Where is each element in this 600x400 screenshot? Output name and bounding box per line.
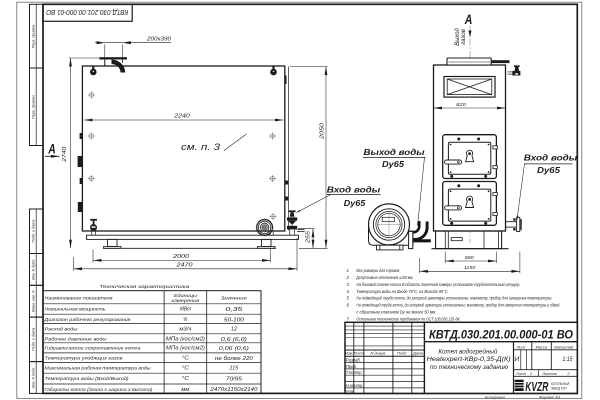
svg-text:не более 220: не более 220 bbox=[215, 356, 254, 362]
svg-text:Перв. примен.: Перв. примен. bbox=[31, 24, 35, 49]
svg-text:Наименование показателя: Наименование показателя bbox=[45, 295, 114, 300]
svg-text:Допустимые отклонения ±100 мм.: Допустимые отклонения ±100 мм. bbox=[356, 275, 414, 280]
svg-text:°С: °С bbox=[182, 365, 189, 371]
svg-text:Рабочее давление воды: Рабочее давление воды bbox=[45, 337, 108, 342]
svg-text:Котел водогрейный: Котел водогрейный bbox=[438, 347, 497, 355]
svg-text:Утв.: Утв. bbox=[346, 389, 356, 394]
svg-text:Перв. примен.: Перв. примен. bbox=[31, 94, 35, 119]
svg-text:%: % bbox=[183, 317, 187, 323]
svg-text:Гидравлическое сопротивление к: Гидравлическое сопротивление котла bbox=[45, 346, 142, 351]
svg-text:Масса: Масса bbox=[535, 345, 547, 350]
svg-text:КОТЕЛЬНЫЙ: КОТЕЛЬНЫЙ bbox=[551, 382, 569, 386]
svg-text:°С: °С bbox=[182, 376, 189, 382]
svg-text:А: А bbox=[48, 141, 56, 157]
svg-text:И: И bbox=[515, 356, 520, 363]
svg-text:Подп. и дата: Подп. и дата bbox=[31, 220, 35, 243]
svg-text:12: 12 bbox=[231, 327, 238, 333]
svg-text:Максимальная рабочая температу: Максимальная рабочая температура воды bbox=[45, 365, 152, 370]
svg-text:Разраб.: Разраб. bbox=[346, 358, 361, 363]
svg-text:газов: газов bbox=[460, 29, 467, 45]
svg-text:Инв. N дубл.: Инв. N дубл. bbox=[31, 259, 35, 280]
svg-text:измерения: измерения bbox=[171, 298, 200, 303]
svg-text:МПа (кгс/см2): МПа (кгс/см2) bbox=[166, 346, 205, 352]
svg-text:115: 115 bbox=[229, 366, 239, 372]
svg-text:1150: 1150 bbox=[464, 265, 476, 271]
svg-text:КВТД.030.201.00.000-01 ВО: КВТД.030.201.00.000-01 ВО bbox=[46, 8, 128, 17]
svg-text:Масштаб: Масштаб bbox=[554, 345, 574, 350]
svg-text:Т.контр.: Т.контр. bbox=[346, 370, 363, 375]
svg-text:Номинальная мощность: Номинальная мощность bbox=[45, 307, 107, 312]
svg-text:2: 2 bbox=[346, 275, 350, 280]
svg-text:Взам. инв. N: Взам. инв. N bbox=[31, 290, 35, 312]
svg-text:с обратным клапаном Dу не мен: с обратным клапаном Dу не менее 50 мм. bbox=[356, 310, 436, 315]
svg-text:Подп. и дата: Подп. и дата bbox=[31, 328, 35, 351]
svg-text:На отводящей трубе котла, до з: На отводящей трубе котла, до запорной ар… bbox=[356, 303, 559, 308]
svg-text:580: 580 bbox=[465, 255, 474, 261]
svg-text:2000: 2000 bbox=[172, 254, 189, 260]
svg-text:Формат А3: Формат А3 bbox=[539, 395, 561, 400]
svg-text:Значение: Значение bbox=[221, 296, 247, 301]
svg-text:МВт: МВт bbox=[180, 307, 191, 313]
svg-text:Вход воды: Вход воды bbox=[327, 184, 381, 194]
svg-text:А: А bbox=[464, 11, 472, 27]
svg-text:мм: мм bbox=[181, 387, 190, 393]
svg-text:Температура уходящих газов: Температура уходящих газов bbox=[45, 356, 124, 361]
svg-text:Листов: Листов bbox=[541, 371, 556, 376]
svg-text:Остальные технические требован: Остальные технические требования по ОСТ … bbox=[356, 317, 460, 322]
svg-text:2050: 2050 bbox=[320, 123, 326, 140]
svg-text:KVZR: KVZR bbox=[525, 380, 548, 394]
svg-text:Лист: Лист bbox=[353, 351, 365, 356]
svg-text:0,6 (6,0): 0,6 (6,0) bbox=[221, 337, 247, 343]
svg-text:Н.контр.: Н.контр. bbox=[346, 383, 364, 388]
svg-text:255: 255 bbox=[306, 231, 312, 245]
svg-text:Копировал: Копировал bbox=[485, 396, 505, 400]
svg-text:50-100: 50-100 bbox=[224, 317, 245, 323]
svg-text:Температура воды (Вход/Выход): Температура воды (Вход/Выход) bbox=[45, 376, 130, 381]
svg-text:2470: 2470 bbox=[175, 262, 192, 268]
svg-text:Диапазон рабочего регулировани: Диапазон рабочего регулирования bbox=[43, 317, 131, 322]
svg-text:Heatexpert-КВр-0,35-Д(К): Heatexpert-КВр-0,35-Д(К) bbox=[427, 356, 511, 363]
svg-text:Вход воды: Вход воды bbox=[524, 153, 578, 163]
svg-text:Дата: Дата bbox=[412, 351, 424, 356]
svg-text:200х390: 200х390 bbox=[146, 36, 171, 42]
svg-text:1:15: 1:15 bbox=[563, 356, 573, 363]
svg-text:0,06 (0,6): 0,06 (0,6) bbox=[219, 346, 249, 352]
svg-text:Габариты котла (длина х ширина: Габариты котла (длина х ширина х высота) bbox=[45, 387, 154, 392]
svg-text:Изм.: Изм. bbox=[345, 351, 353, 356]
svg-text:ЗАВОД РЭП: ЗАВОД РЭП bbox=[551, 386, 567, 390]
svg-text:2470х1150х2140: 2470х1150х2140 bbox=[209, 387, 258, 393]
svg-text:см. п. 3: см. п. 3 bbox=[181, 142, 220, 152]
svg-text:Пров.: Пров. bbox=[346, 364, 357, 369]
svg-text:по техническому заданию: по техническому заданию bbox=[430, 363, 508, 371]
svg-text:Подп.: Подп. bbox=[397, 351, 407, 356]
svg-text:0,35: 0,35 bbox=[225, 307, 243, 313]
svg-text:70/95: 70/95 bbox=[226, 376, 243, 382]
svg-text:1: 1 bbox=[530, 371, 532, 376]
svg-text:Техническая характеристика: Техническая характеристика bbox=[99, 284, 190, 289]
svg-text:На боковой стенке котла В обла: На боковой стенке котла В области топочн… bbox=[356, 282, 520, 287]
svg-text:820: 820 bbox=[456, 102, 466, 108]
svg-text:МПа (кгс/см2): МПа (кгс/см2) bbox=[166, 337, 205, 343]
svg-text:Лист: Лист bbox=[515, 371, 527, 376]
svg-text:Все размеры для справок: Все размеры для справок bbox=[356, 268, 400, 273]
svg-text:Лит.: Лит. bbox=[516, 345, 526, 350]
svg-text:Температура воды на Входе 70°С: Температура воды на Входе 70°С, на Выход… bbox=[356, 289, 448, 294]
svg-text:м3/ч: м3/ч bbox=[179, 326, 191, 332]
svg-text:Dy65: Dy65 bbox=[382, 159, 404, 169]
svg-text:Расход воды: Расход воды bbox=[45, 326, 79, 331]
svg-text:На подводящей трубе котла, до: На подводящей трубе котла, до запорной а… bbox=[356, 296, 552, 301]
svg-text:N докум.: N докум. bbox=[371, 351, 387, 356]
svg-text:Dy65: Dy65 bbox=[344, 198, 366, 208]
svg-text:Инв. N подл.: Инв. N подл. bbox=[31, 367, 35, 389]
svg-text:КВТД.030.201.00.000-01 ВО: КВТД.030.201.00.000-01 ВО bbox=[429, 328, 573, 342]
svg-text:Dy65: Dy65 bbox=[537, 165, 560, 175]
svg-text:°С: °С bbox=[182, 356, 189, 362]
svg-text:Выход воды: Выход воды bbox=[364, 147, 426, 157]
svg-text:2240: 2240 bbox=[173, 113, 190, 119]
svg-text:2740: 2740 bbox=[62, 147, 68, 163]
